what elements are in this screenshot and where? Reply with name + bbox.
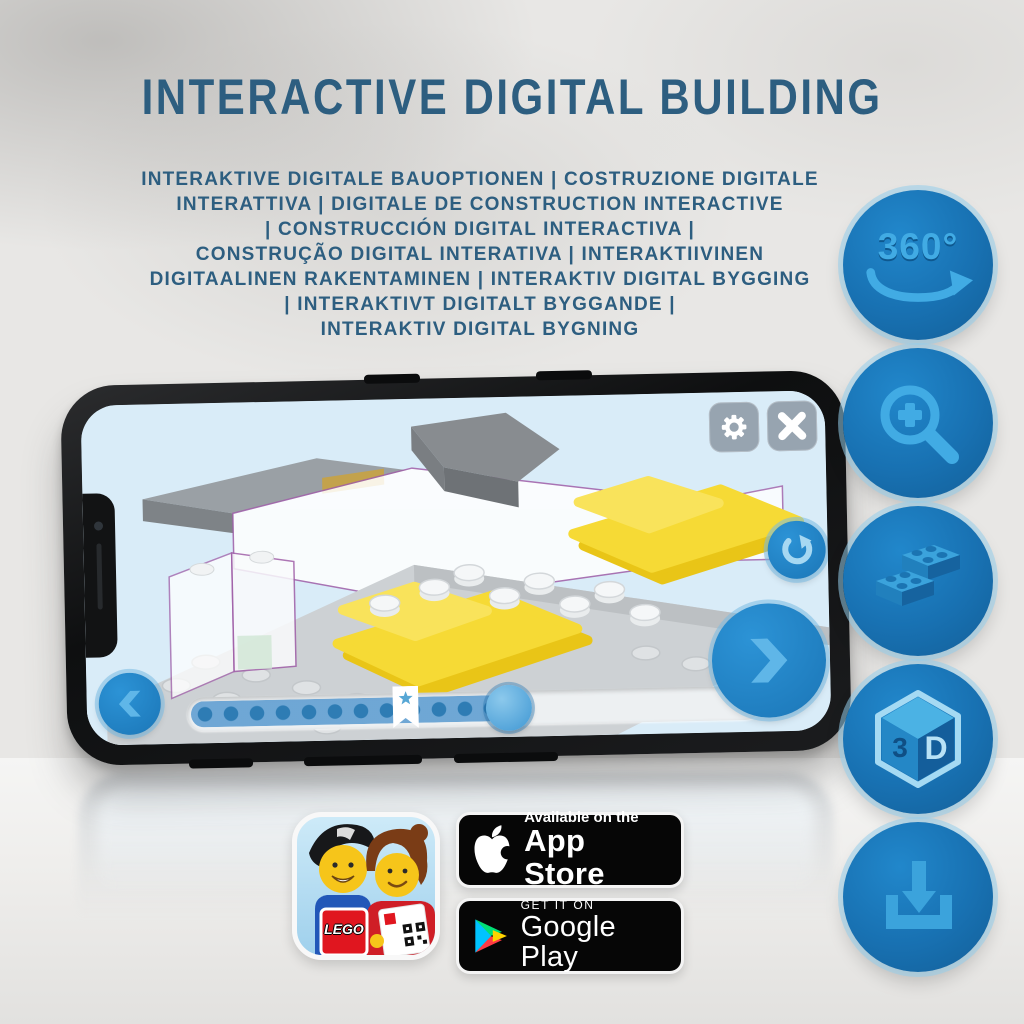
download-icon <box>843 822 993 972</box>
360-label: 360° <box>878 226 959 268</box>
prev-chevron-icon <box>119 691 142 717</box>
apple-logo-icon <box>472 822 512 878</box>
lego-bricks-icon <box>843 506 993 656</box>
zoom-in-icon <box>843 348 993 498</box>
phone-screen <box>81 390 832 746</box>
subtitle-line: | CONSTRUCCIÓN DIGITAL INTERACTIVA | <box>120 217 840 242</box>
360-rotation-icon: 360° <box>843 190 993 340</box>
speaker-slit <box>96 543 102 609</box>
google-play-badge[interactable]: GET IT ON Google Play <box>456 898 684 974</box>
rotate-reset-icon <box>779 533 814 568</box>
page-title: INTERACTIVE DIGITAL BUILDING <box>0 68 1024 126</box>
phone-notch <box>82 493 117 658</box>
cube-glyph: 3 D <box>868 689 968 789</box>
subtitle-line: INTERAKTIVE DIGITALE BAUOPTIONEN | COSTR… <box>120 167 840 192</box>
close-icon <box>777 411 808 442</box>
cube-3-label: 3 <box>892 732 908 763</box>
gear-icon <box>718 411 751 444</box>
subtitle-line: INTERATTIVA | DIGITALE DE CONSTRUCTION I… <box>120 192 840 217</box>
google-play-icon <box>472 914 509 958</box>
settings-button[interactable] <box>709 402 760 453</box>
badge-store-name: Google Play <box>521 912 668 973</box>
subtitle-line: INTERAKTIV DIGITAL BYGNING <box>120 317 840 342</box>
cube-d-label: D <box>924 730 947 766</box>
subtitle-line: | INTERAKTIVT DIGITALT BYGGANDE | <box>120 292 840 317</box>
download-glyph <box>870 849 966 945</box>
lego-logo-text: LEGO <box>321 921 367 937</box>
phone-device-frame <box>60 370 852 766</box>
side-key <box>189 758 253 768</box>
subtitle: INTERAKTIVE DIGITALE BAUOPTIONEN | COSTR… <box>120 167 840 342</box>
side-key <box>364 374 420 384</box>
subtitle-line: CONSTRUÇÃO DIGITAL INTERATIVA | INTERAKT… <box>120 242 840 267</box>
camera-icon <box>94 521 103 530</box>
instruction-card <box>378 904 430 955</box>
marketing-image: INTERACTIVE DIGITAL BUILDING INTERAKTIVE… <box>0 0 1024 1024</box>
progress-fill <box>191 695 513 728</box>
subtitle-line: DIGITAALINEN RAKENTAMINEN | INTERAKTIV D… <box>120 267 840 292</box>
next-chevron-icon <box>750 638 789 683</box>
badge-tagline: GET IT ON <box>521 899 668 912</box>
close-button[interactable] <box>767 400 818 451</box>
3d-cube-icon: 3 D <box>843 664 993 814</box>
app-store-badge[interactable]: Available on the App Store <box>456 812 684 888</box>
magnifier-plus-glyph <box>870 375 966 471</box>
bookmark-star-icon <box>398 691 412 705</box>
rotation-arrow <box>863 268 973 304</box>
side-key <box>536 370 592 380</box>
slider-handle[interactable] <box>485 684 532 731</box>
bricks-glyph <box>868 533 968 629</box>
lego-app-icon[interactable]: LEGO <box>292 812 440 960</box>
badge-store-name: App Store <box>524 825 668 890</box>
